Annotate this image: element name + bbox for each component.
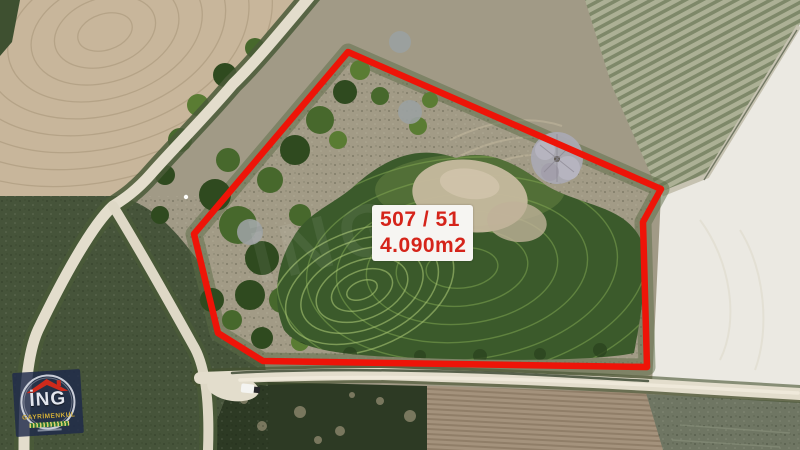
brand-name: İNG	[13, 388, 82, 412]
bare-tree	[531, 132, 583, 184]
bird-speck	[184, 195, 188, 199]
parcel-info-label: 507 / 51 4.090m2	[372, 205, 473, 261]
brand-logo: İNG GAYRİMENKUL	[12, 369, 84, 437]
parcel-number-text: 507 / 51	[380, 207, 473, 233]
field-bottomright	[646, 394, 800, 450]
listing-image: İNG 507 / 51 4.090m2 İNG GAYRİMENKUL	[0, 0, 800, 450]
plowed-field-bottom	[427, 386, 663, 450]
parcel-area-text: 4.090m2	[380, 233, 473, 259]
